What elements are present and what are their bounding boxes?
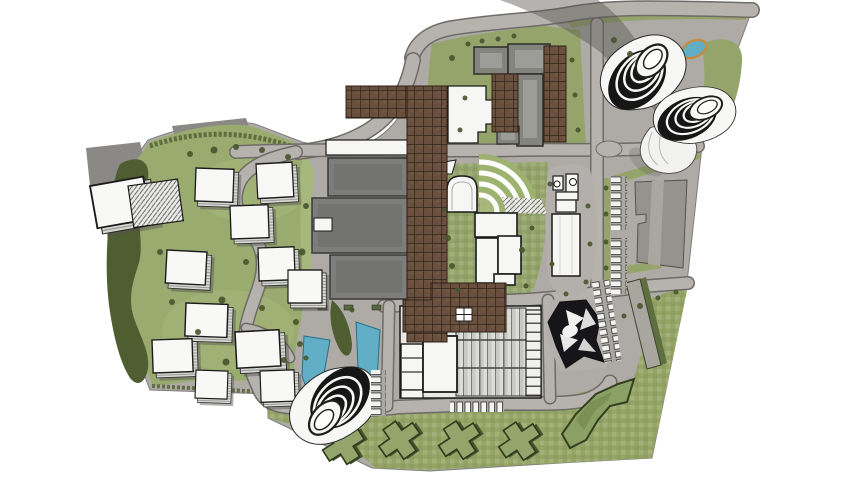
tower-topped-building <box>552 174 580 276</box>
canopy-wing-west <box>346 86 408 118</box>
skylight <box>456 308 472 321</box>
slab-annex <box>314 218 332 231</box>
masterplan-svg: Top-down architectural masterplan render… <box>0 0 860 480</box>
cube-building <box>230 204 277 247</box>
white-midrise-cluster <box>475 213 521 285</box>
cube-building <box>152 338 201 381</box>
cube-building <box>288 270 329 311</box>
canopy-wing-left <box>492 74 518 132</box>
angled-slab-building <box>635 180 687 268</box>
cube-building <box>256 162 301 207</box>
canopy-wing-right <box>544 46 566 142</box>
cube-building <box>195 168 242 211</box>
hall-white-roof <box>423 336 457 392</box>
cube-building <box>195 370 235 406</box>
road-oval-island <box>596 141 622 157</box>
amphitheater-stairs <box>502 197 547 214</box>
site-plan-canvas: Top-down architectural masterplan render… <box>0 0 860 480</box>
pane-wing <box>526 310 541 396</box>
hatched-roof-cube <box>128 179 183 228</box>
cube-building <box>165 250 215 293</box>
white-strip-building <box>326 140 410 155</box>
